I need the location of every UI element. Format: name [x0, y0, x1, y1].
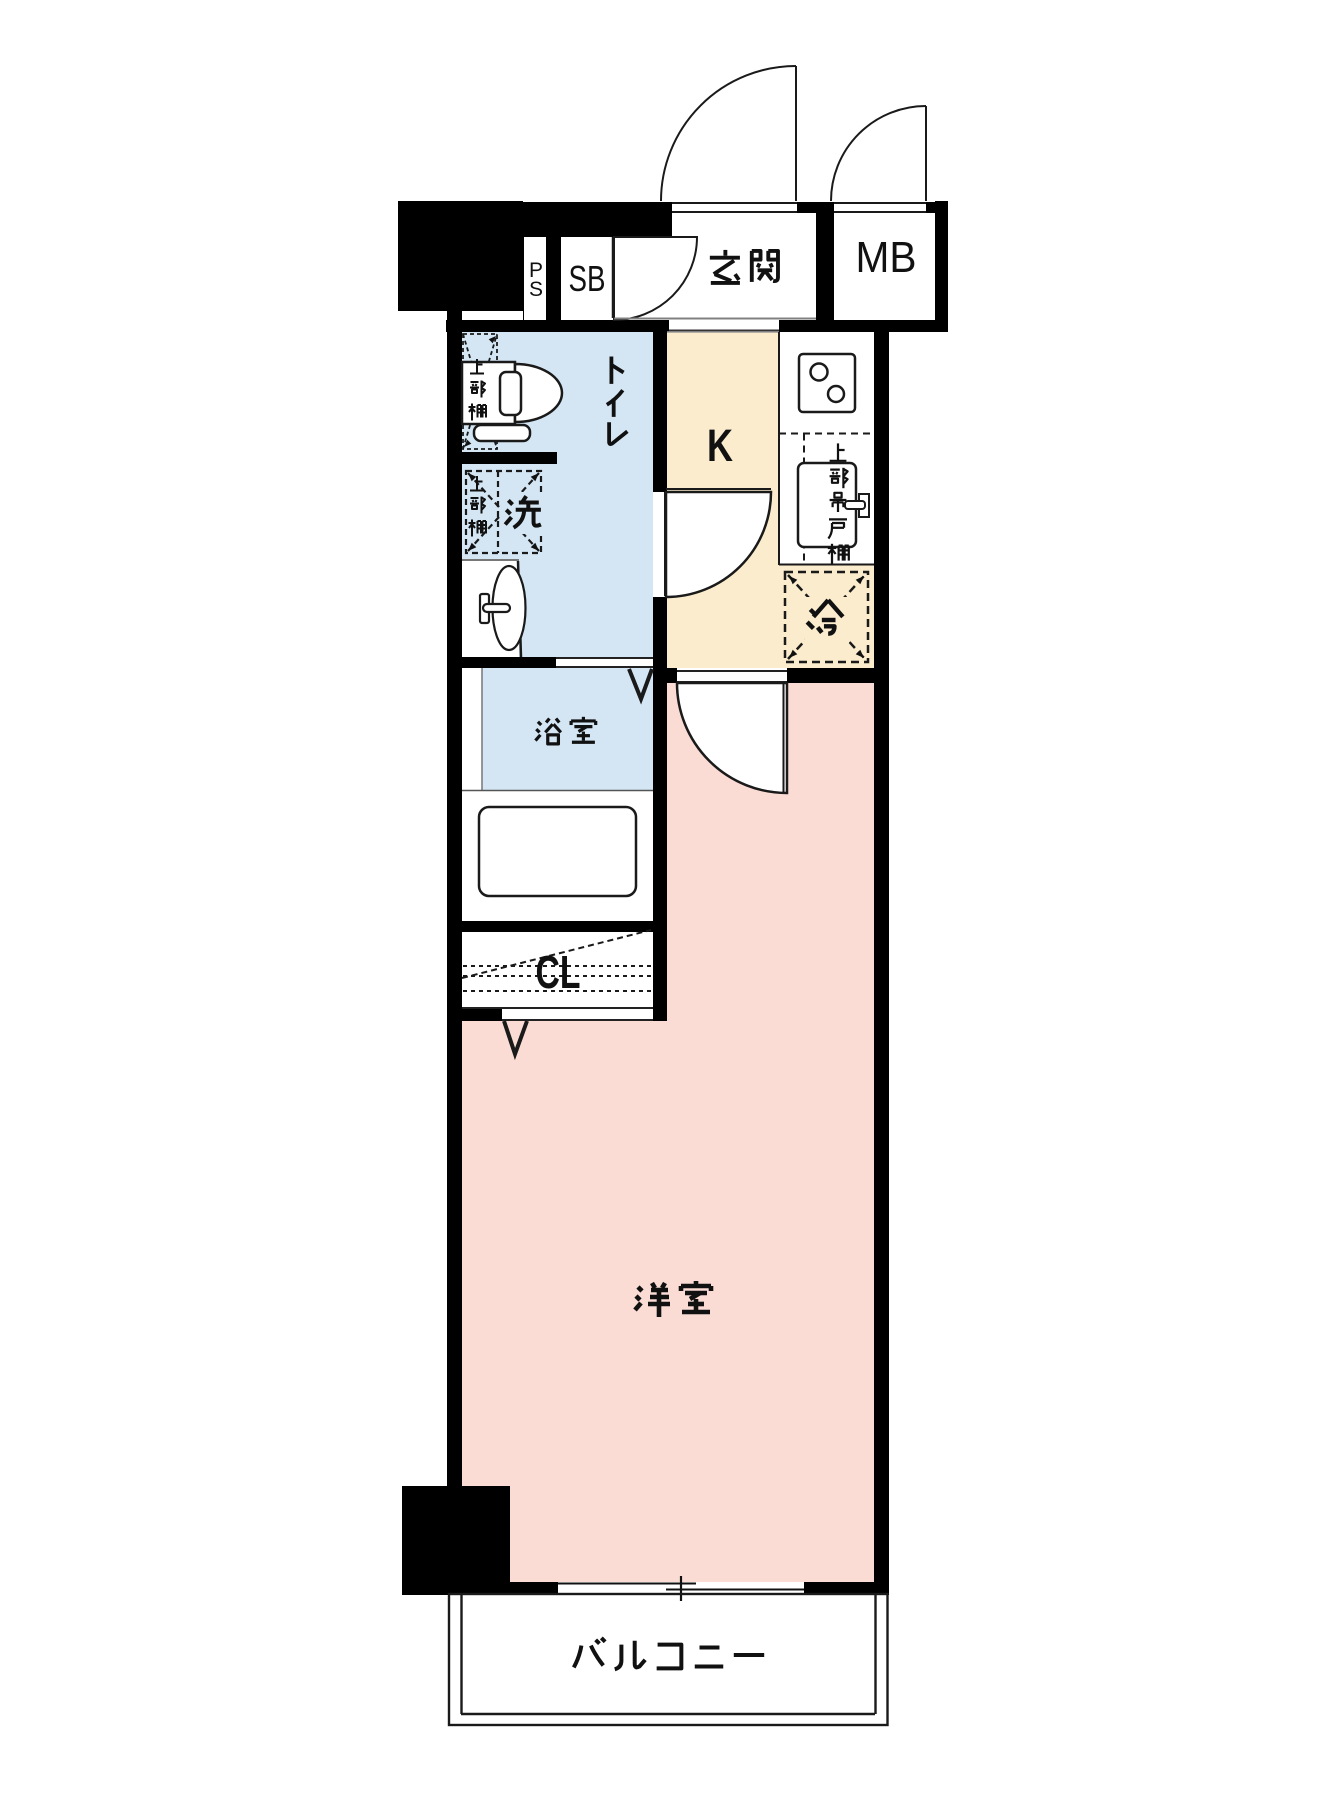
svg-text:MB: MB	[856, 233, 917, 282]
svg-text:CL: CL	[536, 946, 581, 998]
svg-text:SB: SB	[569, 258, 606, 299]
svg-text:K: K	[707, 420, 733, 471]
svg-text:S: S	[529, 278, 543, 301]
